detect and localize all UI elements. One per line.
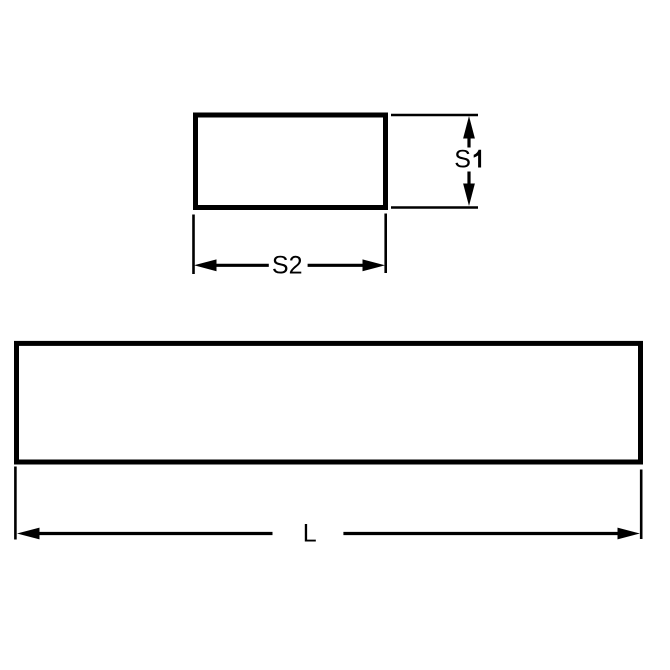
svg-text:S: S — [454, 145, 471, 173]
svg-text:S2: S2 — [272, 251, 303, 279]
svg-text:L: L — [303, 519, 317, 547]
